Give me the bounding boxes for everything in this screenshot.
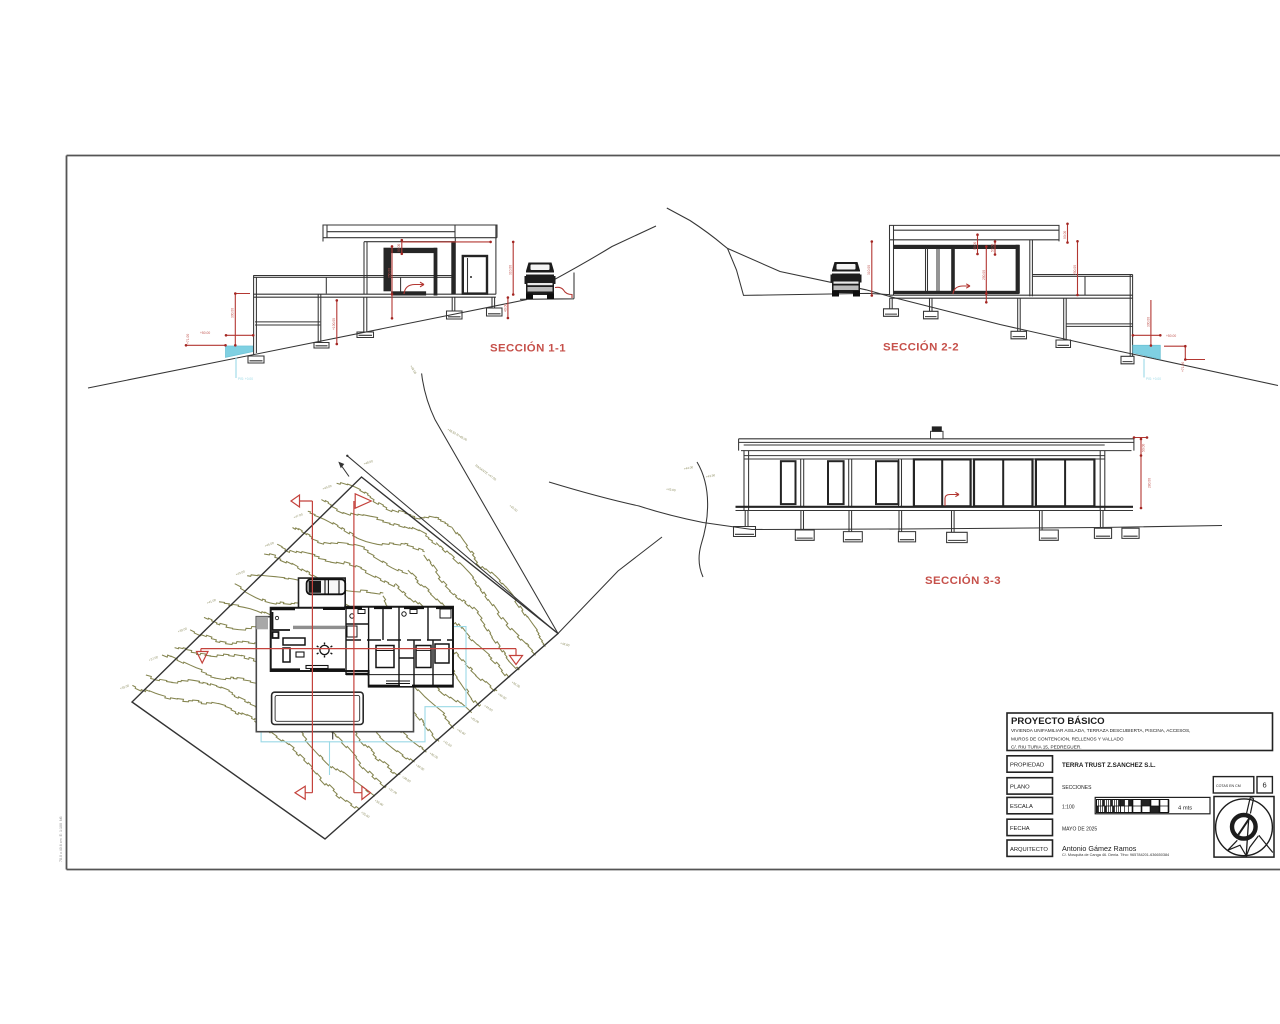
svg-text:PIS: +0.00: PIS: +0.00 bbox=[1146, 377, 1161, 381]
svg-text:40.00: 40.00 bbox=[503, 304, 507, 312]
svg-text:ARQUITECTO: ARQUITECTO bbox=[1010, 847, 1048, 853]
svg-text:50.00: 50.00 bbox=[991, 244, 995, 252]
svg-text:4 mts: 4 mts bbox=[1178, 806, 1192, 812]
svg-text:90.00: 90.00 bbox=[973, 242, 977, 250]
svg-text:250.00: 250.00 bbox=[1073, 265, 1077, 275]
svg-text:50.00: 50.00 bbox=[1142, 444, 1146, 452]
svg-text:PROPIEDAD: PROPIEDAD bbox=[1010, 763, 1044, 769]
svg-text:+71.00: +71.00 bbox=[186, 334, 190, 344]
svg-text:VIVIENDA UNIFAMILIAR AISLADA,: VIVIENDA UNIFAMILIAR AISLADA, TERRAZA DE… bbox=[1011, 728, 1190, 733]
svg-text:PROYECTO BÁSICO: PROYECTO BÁSICO bbox=[1011, 715, 1105, 727]
svg-text:FECHA: FECHA bbox=[1010, 826, 1030, 832]
svg-text:+100.00: +100.00 bbox=[332, 318, 336, 330]
svg-text:TERRA TRUST Z.SANCHEZ S.L.: TERRA TRUST Z.SANCHEZ S.L. bbox=[1062, 762, 1156, 769]
svg-text:300.00: 300.00 bbox=[1146, 317, 1150, 327]
svg-text:SECCIÓN 2-2: SECCIÓN 2-2 bbox=[883, 341, 959, 354]
svg-text:250.00: 250.00 bbox=[387, 268, 391, 278]
svg-text:310.00: 310.00 bbox=[867, 265, 871, 275]
svg-text:PIS: +0.00: PIS: +0.00 bbox=[238, 377, 253, 381]
svg-text:ESCALA: ESCALA bbox=[1010, 804, 1033, 810]
svg-text:90.00: 90.00 bbox=[1063, 231, 1067, 239]
svg-text:C/. RIU TURIA 15, PEDREGUER.: C/. RIU TURIA 15, PEDREGUER. bbox=[1011, 745, 1082, 750]
svg-text:6: 6 bbox=[1263, 781, 1267, 790]
svg-text:SECCIONES: SECCIONES bbox=[1062, 785, 1092, 791]
svg-text:+50.00: +50.00 bbox=[200, 331, 210, 335]
svg-text:1:100: 1:100 bbox=[1062, 805, 1075, 811]
svg-text:SECCIÓN 1-1: SECCIÓN 1-1 bbox=[490, 342, 566, 355]
svg-text:90.00: 90.00 bbox=[397, 244, 401, 252]
svg-text:+50.00: +50.00 bbox=[1166, 334, 1176, 338]
svg-text:COTAS EN CM: COTAS EN CM bbox=[1216, 784, 1241, 788]
svg-text:MUROS DE CONTENCION, RELLENOS: MUROS DE CONTENCION, RELLENOS Y VALLADO bbox=[1011, 736, 1124, 741]
svg-text:+71.00: +71.00 bbox=[1181, 362, 1185, 372]
svg-text:280.00: 280.00 bbox=[1148, 478, 1152, 488]
svg-text:C/. Mosquita de Canga 46. Deni: C/. Mosquita de Canga 46. Denia. Tfno: 9… bbox=[1062, 853, 1169, 857]
svg-text:250.00: 250.00 bbox=[982, 270, 986, 280]
svg-text:300.00: 300.00 bbox=[231, 308, 235, 318]
svg-text:SECCIÓN 3-3: SECCIÓN 3-3 bbox=[925, 574, 1001, 587]
svg-text:310.00: 310.00 bbox=[509, 265, 513, 275]
svg-text:MAYO DE 2025: MAYO DE 2025 bbox=[1062, 826, 1097, 832]
svg-text:PLANO: PLANO bbox=[1010, 785, 1030, 791]
svg-text:78.0 x 40.6 cm E: 1:100 N6: 78.0 x 40.6 cm E: 1:100 N6 bbox=[59, 816, 63, 862]
